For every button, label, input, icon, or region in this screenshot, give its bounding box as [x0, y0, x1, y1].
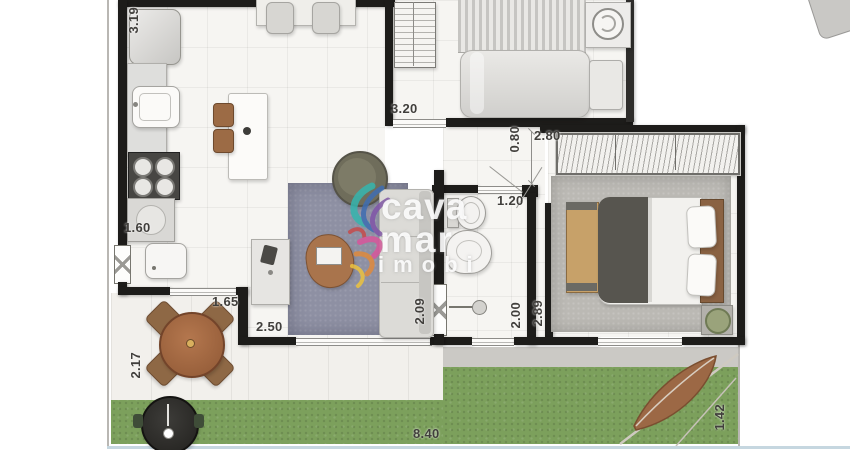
bed-bench-end-top [566, 202, 597, 210]
kitchen-sink-basin [139, 93, 171, 121]
bedroom1-window-sill [393, 119, 446, 128]
bedroom1-wardrobe [394, 2, 436, 68]
grill-knob [163, 428, 174, 439]
bed-bench [566, 202, 599, 293]
bbq-grill [141, 396, 199, 450]
shower-head [472, 300, 487, 315]
pouf-tray [316, 247, 342, 265]
bedroom1-wardrobe-divider [413, 2, 414, 66]
sideboard-dot [268, 270, 273, 275]
living-sliding-door [296, 338, 432, 346]
measurement-hall-width: 0.80 [507, 126, 522, 153]
measurement-service-door: 1.65 [212, 294, 239, 309]
laundry-tub-drain [152, 266, 156, 270]
bar-stool-2 [213, 129, 234, 153]
vanity-chair-swirl [599, 15, 616, 32]
bedroom2-plant [705, 308, 731, 334]
pillow-1 [686, 205, 717, 248]
grill-handle-right [194, 414, 204, 428]
measurement-terrace-depth: 2.17 [128, 352, 143, 379]
burner-1 [133, 157, 153, 177]
measurement-living-depth: 2.09 [412, 298, 427, 325]
bed-blanket [598, 197, 648, 303]
bedroom2-window [598, 338, 682, 346]
dimension-line [531, 131, 532, 184]
measurement-bathroom-depth: 2.00 [508, 302, 523, 329]
burner-2 [155, 157, 175, 177]
bar-stool-1 [213, 103, 234, 127]
kitchen-faucet [133, 102, 138, 107]
dining-chair-2 [312, 2, 340, 34]
burner-4 [155, 177, 175, 197]
grill-handle-left [133, 414, 143, 428]
wall-bottom-right [682, 337, 745, 345]
pillow-2 [686, 253, 717, 296]
measurement-bedroom2-width: 2.80 [534, 128, 561, 143]
measurement-service-width: 1.60 [124, 220, 151, 235]
wall-bottom-mid [514, 337, 598, 345]
wall-living-bottom-left [240, 337, 296, 345]
measurement-living-width: 2.50 [256, 319, 283, 334]
measurement-bedroom1-width: 3.20 [391, 101, 418, 116]
measurement-garden-depth: 1.42 [712, 404, 727, 431]
watermark-line3: imobi [378, 254, 482, 276]
bottom-edge-line [107, 446, 850, 449]
patio-table-center [186, 339, 195, 348]
bedroom1-nightstand [589, 60, 623, 110]
measurement-bedroom2-depth: 2.89 [530, 300, 545, 327]
kitchen-island [228, 93, 268, 180]
measurement-kitchen-depth: 3.19 [126, 7, 141, 34]
bathroom-window [472, 338, 514, 346]
bedroom2-wardrobe [556, 133, 740, 175]
adjacent-unit-fragment [806, 0, 850, 41]
burner-3 [133, 177, 153, 197]
bedroom1-bed-fold [470, 52, 484, 114]
terrace-floor-center [248, 345, 443, 401]
wall-bathroom-left-stub [434, 334, 444, 345]
bed-sheet-fold [648, 198, 652, 302]
wall-bedroom2-top [540, 125, 745, 133]
laundry-tub [145, 243, 187, 279]
wall-left-upper [118, 0, 127, 245]
floor-plan: 3.19 3.20 0.80 2.80 1.20 1.60 1.65 2.50 … [0, 0, 850, 450]
measurement-bathroom-door: 1.20 [497, 193, 524, 208]
boundary-left-line [107, 0, 109, 447]
bed-bench-end-bottom [566, 283, 597, 291]
wall-service-bottom [118, 287, 170, 295]
bedroom1-curtain [458, 0, 586, 53]
grill-line [167, 404, 169, 426]
service-window [114, 245, 131, 284]
dining-chair-1 [266, 2, 294, 34]
island-sink-drain [243, 127, 251, 135]
measurement-garden-width: 8.40 [413, 426, 440, 441]
garden-leaf-plant [618, 352, 740, 446]
bedroom2-wardrobe-divider-1 [615, 134, 616, 170]
bedroom2-wardrobe-divider-2 [675, 134, 676, 170]
